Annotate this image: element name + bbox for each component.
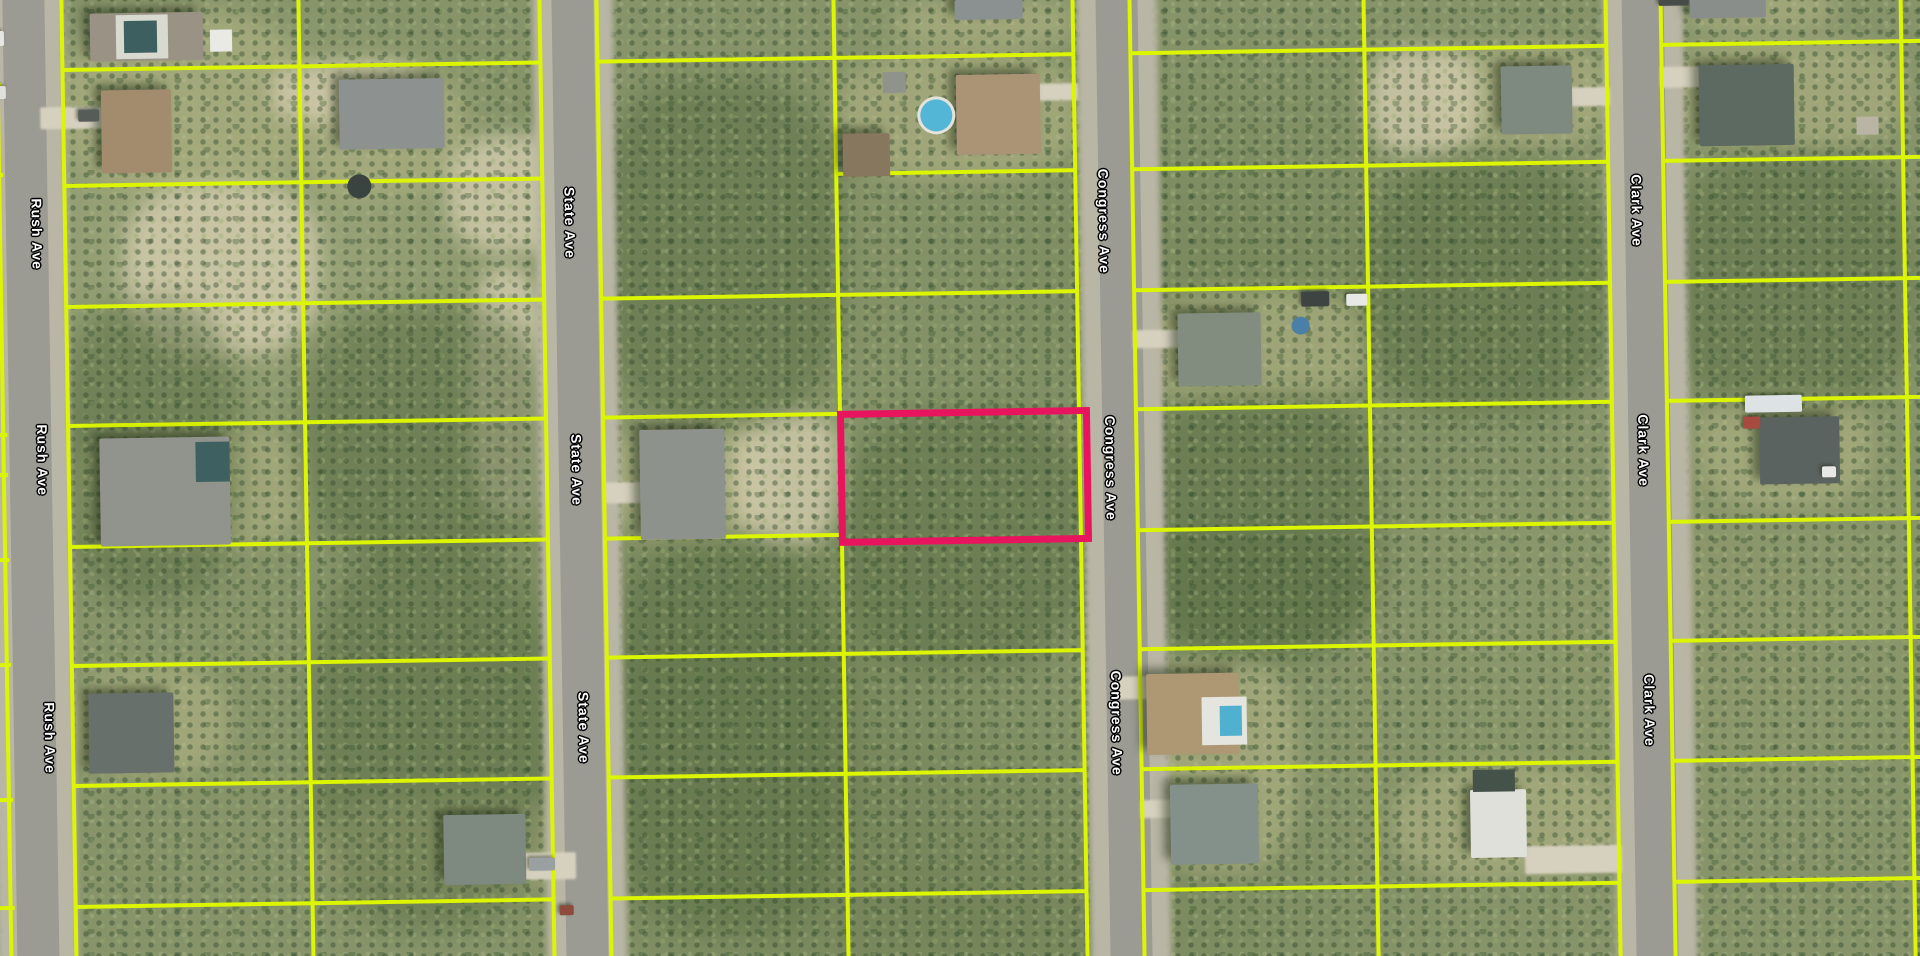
street-label-rush-ave: Rush Ave bbox=[41, 702, 58, 774]
street-label-clark-ave: Clark Ave bbox=[1628, 174, 1645, 247]
house-rush-bottom bbox=[88, 692, 174, 773]
aerial-parcel-map[interactable]: Rush AveRush AveRush AveState AveState A… bbox=[0, 0, 1920, 956]
parcel-line-row bbox=[307, 537, 548, 545]
house-state-east-mid bbox=[639, 429, 726, 540]
parcel-line-row bbox=[1364, 44, 1606, 52]
parcel-line-row bbox=[838, 289, 1077, 297]
parcel-line-row bbox=[597, 56, 834, 64]
vehicle bbox=[560, 905, 574, 915]
parcel-line-row bbox=[313, 897, 554, 905]
house-state-bottom bbox=[443, 814, 526, 885]
vehicle bbox=[0, 86, 6, 99]
parcel-line-row bbox=[1136, 404, 1370, 412]
parcel-line-row bbox=[1376, 760, 1618, 768]
parcel-line-row bbox=[1377, 881, 1619, 889]
parcel-line-row bbox=[66, 301, 303, 309]
parcel-line-row bbox=[76, 901, 313, 909]
parcel-line-block1-divider bbox=[296, 0, 316, 956]
vehicle bbox=[1301, 291, 1329, 306]
dark-structure bbox=[1473, 769, 1515, 792]
parcel-line-row bbox=[0, 558, 9, 562]
parcel-line-row bbox=[1138, 525, 1372, 533]
vehicle bbox=[1743, 416, 1760, 428]
house-clark-west-top bbox=[1501, 65, 1573, 134]
street-label-rush-ave: Rush Ave bbox=[28, 198, 45, 270]
house-congress-east-low bbox=[1170, 783, 1259, 864]
pool bbox=[1220, 706, 1242, 736]
driveway bbox=[1525, 845, 1622, 875]
house-clark-east-dark bbox=[1699, 64, 1795, 146]
parcel-line-row bbox=[1372, 521, 1614, 529]
trampoline bbox=[347, 174, 371, 198]
parcel-line-row bbox=[846, 768, 1085, 776]
parcel-line-row bbox=[609, 772, 846, 780]
parcel-line-row bbox=[0, 433, 7, 437]
driveway bbox=[604, 482, 642, 504]
parcel-line-row bbox=[72, 660, 309, 668]
house-block1-top bbox=[339, 78, 445, 150]
parcel-line-row bbox=[0, 906, 15, 910]
street-label-congress-ave: Congress Ave bbox=[1095, 169, 1113, 274]
house-clark-east-topedge bbox=[1689, 0, 1765, 18]
parcel-line-row bbox=[0, 473, 8, 477]
parcel-line-row bbox=[1140, 644, 1374, 652]
parcel-line-row bbox=[1368, 281, 1610, 289]
parcel-line-row bbox=[1134, 285, 1368, 293]
vehicle bbox=[1745, 395, 1802, 413]
parcel-line-row bbox=[1366, 160, 1608, 168]
parcel-line-row bbox=[62, 64, 299, 72]
parcel-line-row bbox=[1374, 640, 1616, 648]
parcel-line-row bbox=[305, 416, 546, 424]
vehicle bbox=[1658, 0, 1688, 6]
parcel-line-row bbox=[1143, 884, 1377, 892]
driveway bbox=[1133, 330, 1180, 349]
parcel-line-row bbox=[0, 663, 11, 667]
vehicle bbox=[1346, 294, 1367, 306]
street-label-state-ave: State Ave bbox=[561, 187, 578, 259]
parcel-line-row bbox=[1132, 164, 1366, 172]
parcel-line-row bbox=[607, 652, 844, 660]
vehicle bbox=[529, 857, 555, 870]
parcel-line-row bbox=[1669, 516, 1920, 524]
parcel-line-row bbox=[311, 776, 552, 784]
shed bbox=[1856, 117, 1878, 135]
parcel-line-row bbox=[64, 180, 301, 188]
pool-equipment bbox=[1292, 316, 1310, 334]
street-label-state-ave: State Ave bbox=[568, 434, 585, 506]
highlighted-parcel[interactable] bbox=[836, 406, 1091, 545]
parcel-line-row bbox=[848, 889, 1087, 897]
parcel-line-row bbox=[0, 798, 13, 802]
parcel-line-block3-divider bbox=[1361, 0, 1381, 956]
street-label-congress-ave: Congress Ave bbox=[1102, 416, 1120, 521]
street-label-clark-ave: Clark Ave bbox=[1635, 414, 1652, 487]
house-congress-east-mid bbox=[1177, 312, 1261, 386]
parcel-line-row bbox=[603, 412, 840, 420]
parcel-line-row bbox=[309, 656, 550, 664]
parcel-line-row bbox=[68, 420, 305, 428]
parcel-line-row bbox=[301, 177, 542, 185]
driveway bbox=[1660, 66, 1701, 88]
parcel-line-row bbox=[1370, 400, 1612, 408]
parcel-line-row bbox=[1672, 755, 1920, 763]
street-label-clark-ave: Clark Ave bbox=[1641, 674, 1658, 747]
parcel-line-row bbox=[1130, 48, 1364, 56]
round-pool bbox=[920, 99, 952, 131]
screened-pool bbox=[195, 441, 230, 482]
parcel-line-row bbox=[303, 298, 544, 306]
parcel-line-row bbox=[601, 293, 838, 301]
parcel-line-row bbox=[834, 52, 1073, 60]
shed bbox=[210, 29, 232, 51]
house-congress-tan-pool bbox=[956, 74, 1041, 155]
parcel-line-row bbox=[1674, 876, 1920, 884]
parcel-line-row bbox=[74, 780, 311, 788]
parcel-line-row bbox=[299, 61, 540, 69]
screened-pool bbox=[124, 21, 157, 54]
parcel-line-row bbox=[844, 648, 1083, 656]
house-small-brown bbox=[843, 133, 891, 177]
parcel-line-row bbox=[1661, 39, 1920, 47]
street-label-rush-ave: Rush Ave bbox=[34, 424, 51, 496]
vehicle bbox=[78, 109, 99, 121]
parcel-line-row bbox=[611, 893, 848, 901]
parcel-line-row bbox=[1671, 635, 1920, 643]
map-feature-layer: Rush AveRush AveRush AveState AveState A… bbox=[0, 0, 1920, 956]
house-rush-east bbox=[101, 89, 172, 173]
parcel-line-row bbox=[1142, 764, 1376, 772]
street-label-congress-ave: Congress Ave bbox=[1108, 670, 1126, 775]
vehicle bbox=[1822, 466, 1836, 477]
street-label-state-ave: State Ave bbox=[575, 692, 592, 764]
vehicle bbox=[0, 31, 4, 46]
parcel-line-row bbox=[1665, 276, 1920, 284]
house-congress-top-edge bbox=[954, 0, 1022, 20]
shed bbox=[883, 72, 906, 93]
parcel-line-row bbox=[0, 173, 3, 177]
parcel-line-row bbox=[1663, 155, 1920, 163]
driveway bbox=[1140, 800, 1172, 819]
house-white-roof bbox=[1470, 789, 1527, 858]
